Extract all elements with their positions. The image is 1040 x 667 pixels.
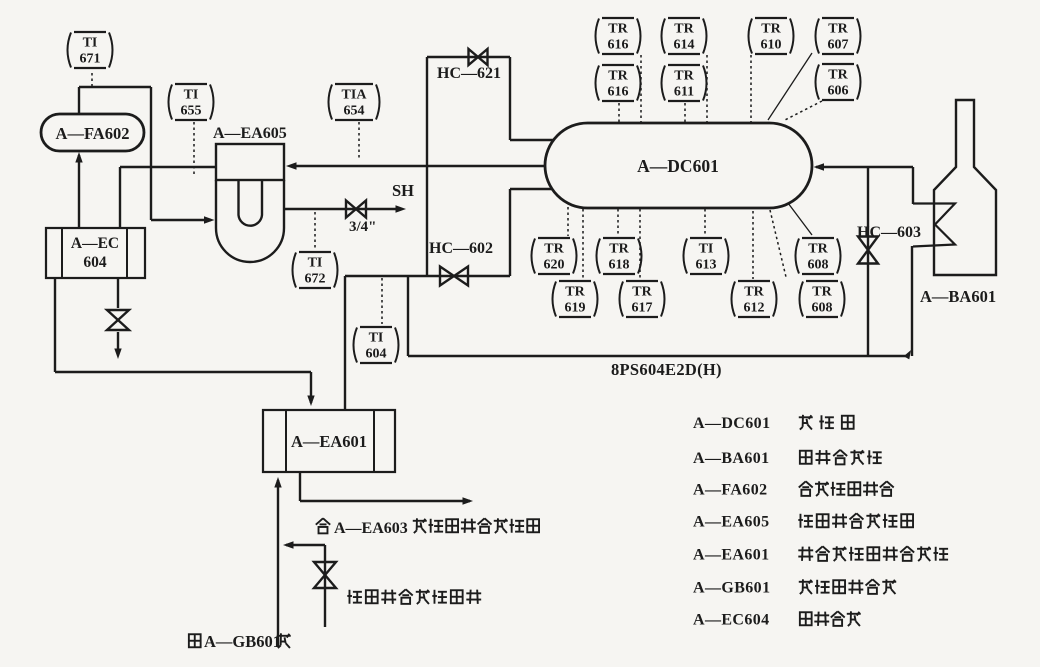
- svg-text:A—GB601: A—GB601: [693, 580, 770, 597]
- svg-text:A—GB601: A—GB601: [204, 632, 281, 651]
- svg-text:TR: TR: [608, 69, 628, 84]
- svg-text:A—FA602: A—FA602: [693, 482, 768, 499]
- svg-text:TI: TI: [83, 36, 98, 51]
- svg-text:TR: TR: [808, 242, 828, 257]
- svg-text:TR: TR: [674, 22, 694, 37]
- svg-text:604: 604: [366, 347, 387, 362]
- svg-text:A—DC601: A—DC601: [637, 156, 719, 176]
- svg-text:3/4": 3/4": [349, 219, 377, 235]
- svg-text:SH: SH: [392, 181, 414, 200]
- svg-text:671: 671: [80, 52, 101, 67]
- svg-text:TR: TR: [632, 285, 652, 300]
- svg-text:611: 611: [674, 85, 694, 100]
- svg-text:672: 672: [305, 272, 326, 287]
- svg-text:TR: TR: [544, 242, 564, 257]
- svg-text:655: 655: [181, 104, 202, 119]
- svg-text:A—DC601: A—DC601: [693, 415, 770, 432]
- svg-text:TI: TI: [699, 242, 714, 257]
- svg-text:A—EA605: A—EA605: [213, 125, 287, 142]
- svg-text:A—EC604: A—EC604: [693, 612, 770, 629]
- svg-text:TI: TI: [308, 256, 323, 271]
- svg-text:654: 654: [344, 104, 365, 119]
- svg-text:A—BA601: A—BA601: [920, 287, 996, 306]
- svg-text:614: 614: [674, 38, 695, 53]
- svg-text:HC—621: HC—621: [437, 65, 501, 82]
- svg-text:TR: TR: [609, 242, 629, 257]
- svg-text:618: 618: [609, 258, 630, 273]
- svg-text:613: 613: [696, 258, 717, 273]
- svg-text:620: 620: [544, 258, 565, 273]
- svg-text:TI: TI: [184, 88, 199, 103]
- svg-text:617: 617: [632, 301, 653, 316]
- svg-text:604: 604: [83, 254, 107, 271]
- svg-text:A—BA601: A—BA601: [693, 450, 770, 467]
- svg-text:607: 607: [828, 38, 849, 53]
- svg-text:HC—603: HC—603: [857, 224, 921, 241]
- svg-text:TR: TR: [565, 285, 585, 300]
- svg-text:A—EC: A—EC: [71, 235, 119, 252]
- svg-text:608: 608: [808, 258, 829, 273]
- svg-text:HC—602: HC—602: [429, 240, 493, 257]
- svg-text:TIA: TIA: [342, 88, 368, 103]
- svg-text:619: 619: [565, 301, 586, 316]
- svg-text:TR: TR: [674, 69, 694, 84]
- svg-text:606: 606: [828, 84, 849, 99]
- svg-text:TR: TR: [744, 285, 764, 300]
- svg-text:610: 610: [761, 38, 782, 53]
- svg-text:TR: TR: [828, 68, 848, 83]
- svg-text:A—EA601: A—EA601: [693, 547, 770, 564]
- svg-text:616: 616: [608, 38, 629, 53]
- svg-text:612: 612: [744, 301, 765, 316]
- svg-text:TR: TR: [608, 22, 628, 37]
- svg-text:608: 608: [812, 301, 833, 316]
- svg-text:TR: TR: [761, 22, 781, 37]
- svg-text:A—EA603: A—EA603: [334, 520, 408, 537]
- svg-text:616: 616: [608, 85, 629, 100]
- svg-text:TI: TI: [369, 331, 384, 346]
- svg-text:A—EA605: A—EA605: [693, 514, 770, 531]
- svg-text:TR: TR: [812, 285, 832, 300]
- svg-text:A—EA601: A—EA601: [291, 432, 367, 451]
- svg-text:TR: TR: [828, 22, 848, 37]
- svg-text:8PS604E2D(H): 8PS604E2D(H): [611, 360, 722, 379]
- svg-text:A—FA602: A—FA602: [56, 124, 130, 143]
